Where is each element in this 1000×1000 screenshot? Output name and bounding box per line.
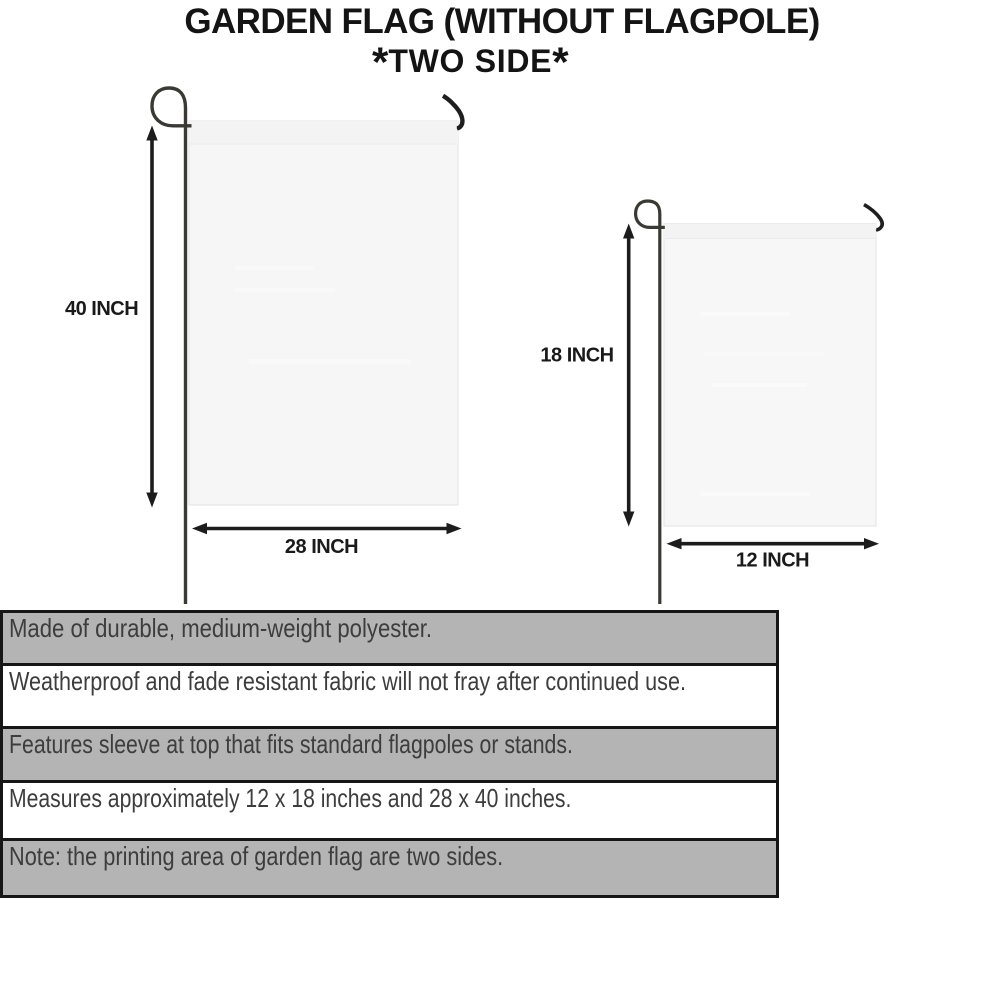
svg-text:12 INCH: 12 INCH: [736, 550, 809, 572]
svg-text:18 INCH: 18 INCH: [540, 345, 613, 367]
svg-text:28 INCH: 28 INCH: [285, 536, 358, 558]
svg-text:40 INCH: 40 INCH: [65, 298, 138, 320]
